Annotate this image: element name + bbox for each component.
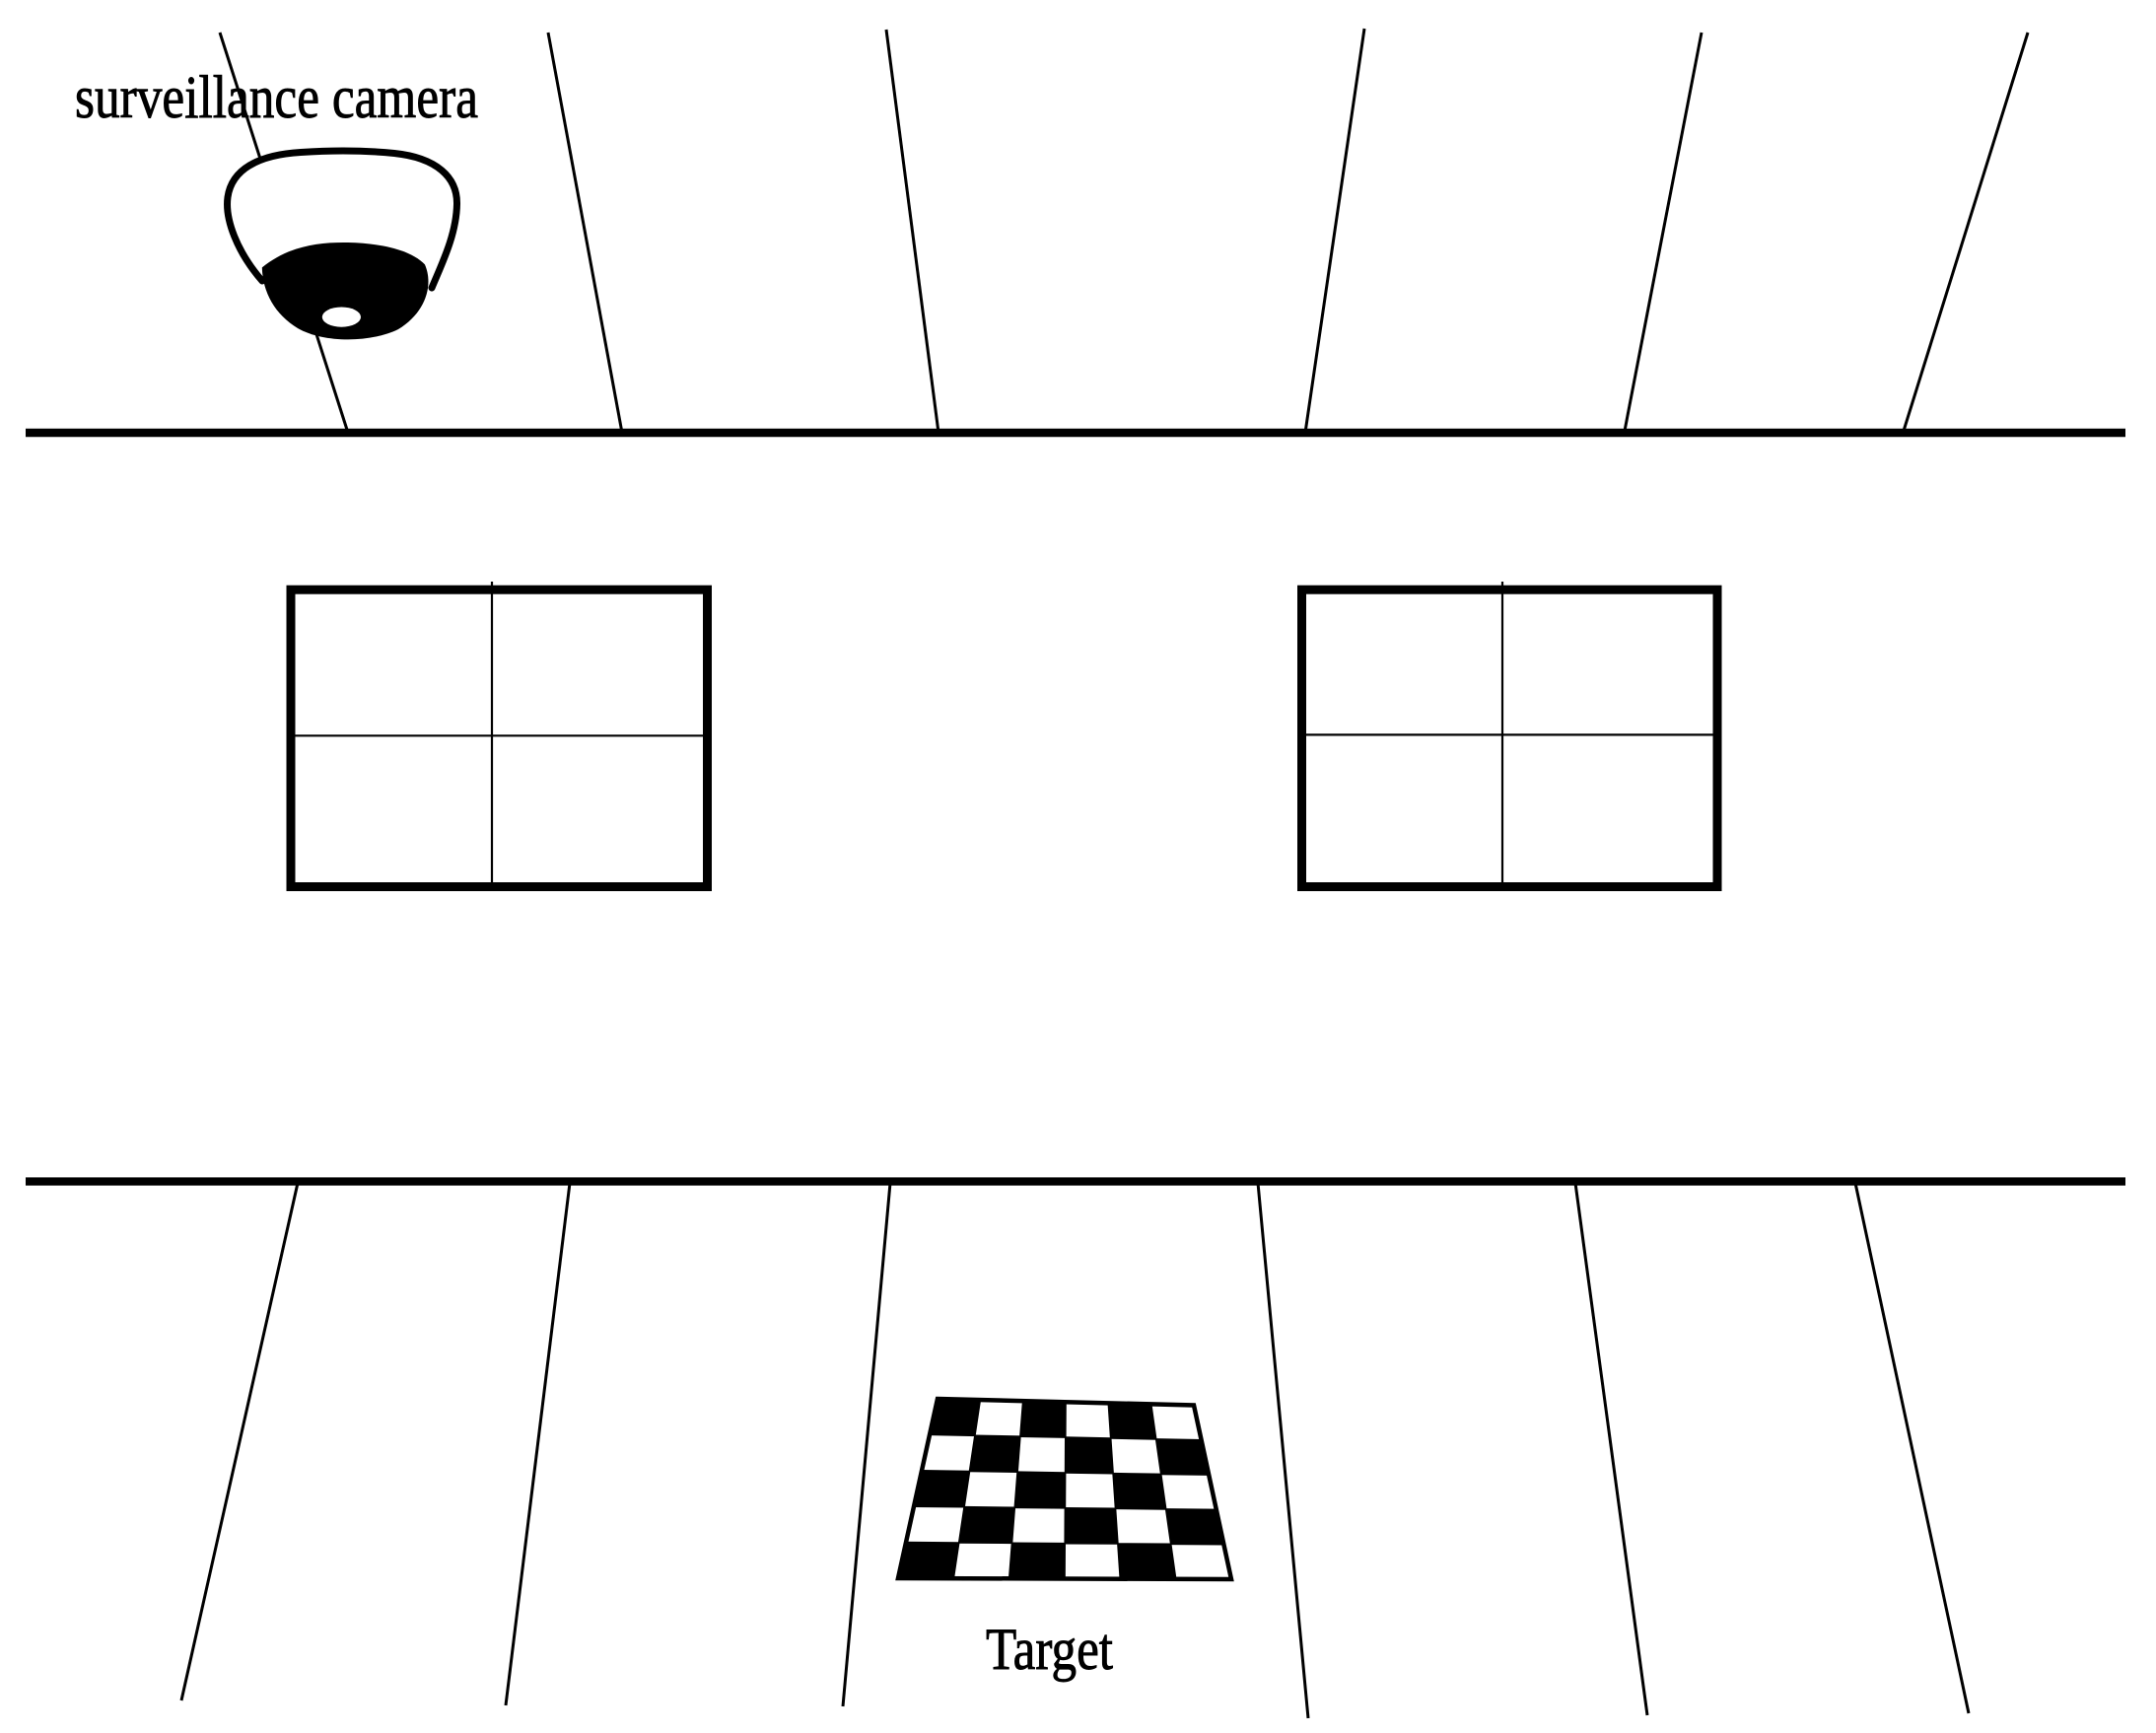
svg-text:surveillance camera: surveillance camera — [75, 65, 478, 131]
svg-text:Target: Target — [986, 1617, 1113, 1682]
